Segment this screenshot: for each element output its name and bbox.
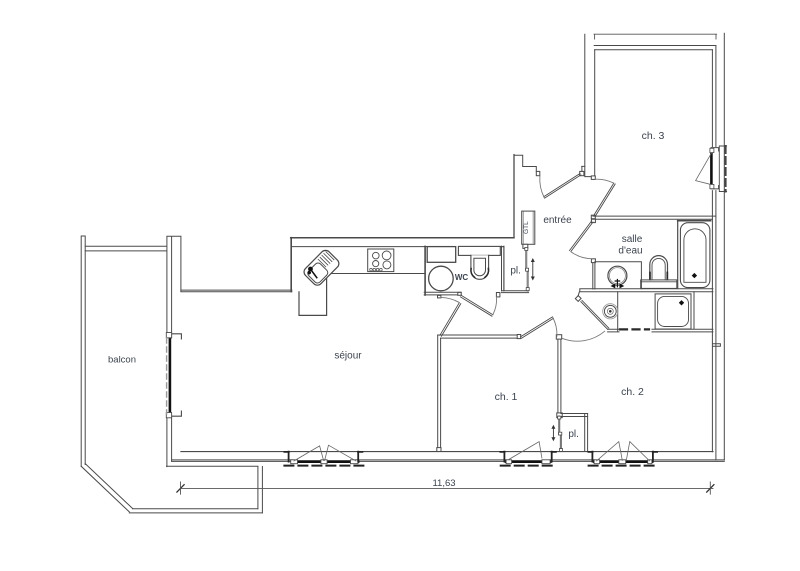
svg-text:balcon: balcon (108, 355, 136, 366)
svg-text:ch. 2: ch. 2 (621, 386, 644, 398)
svg-text:WC: WC (455, 273, 469, 282)
svg-text:d'eau: d'eau (618, 246, 642, 257)
svg-text:séjour: séjour (334, 351, 362, 362)
svg-text:GTL: GTL (523, 221, 530, 234)
svg-text:ch. 3: ch. 3 (642, 130, 665, 142)
svg-text:ch. 1: ch. 1 (495, 391, 518, 403)
svg-text:salle: salle (622, 234, 643, 245)
svg-text:11,63: 11,63 (432, 478, 455, 489)
svg-text:pl.: pl. (568, 429, 579, 440)
svg-text:pl.: pl. (510, 265, 521, 276)
svg-text:entrée: entrée (543, 215, 572, 226)
